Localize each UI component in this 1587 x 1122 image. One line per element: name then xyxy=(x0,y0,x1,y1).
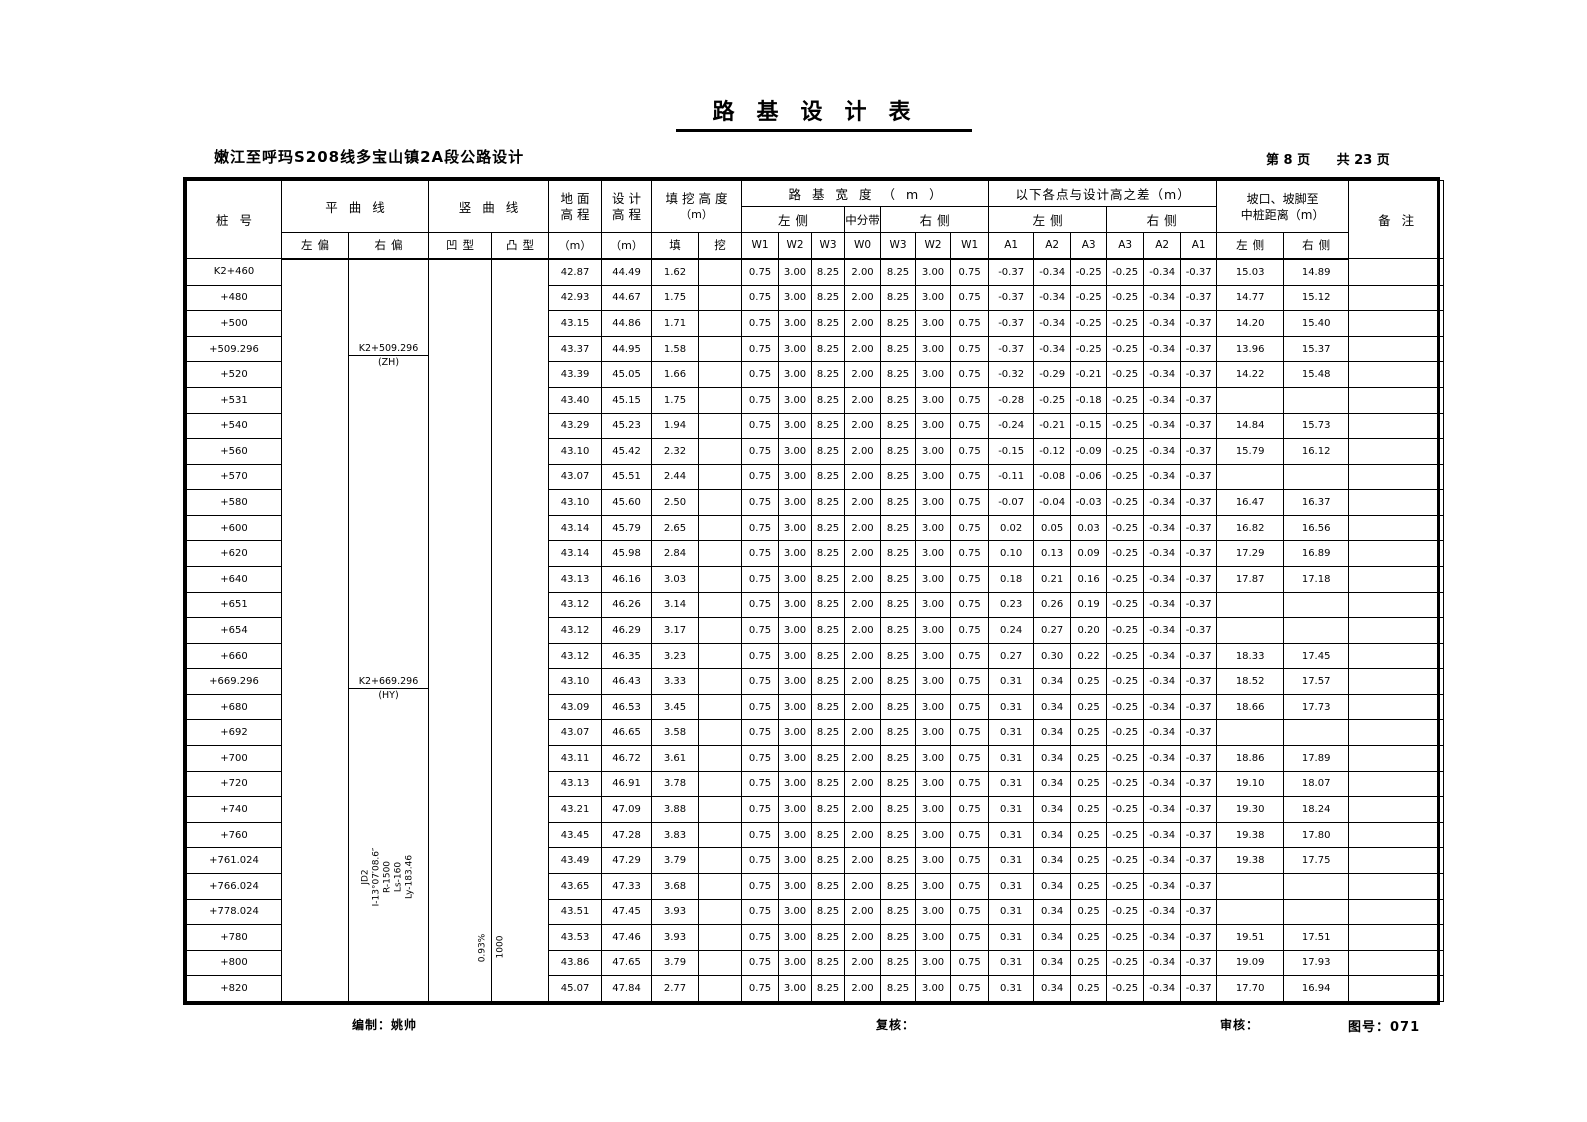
stake-number-cell: +620 xyxy=(187,541,282,567)
height-diff-cell-a2: 0.25 xyxy=(1071,873,1107,899)
height-diff-cell-a5: -0.37 xyxy=(1181,746,1217,772)
page-total: 共 23 页 xyxy=(1337,153,1390,168)
roadbed-width-cell-w1: 3.00 xyxy=(779,541,812,567)
distance-left-cell: 14.77 xyxy=(1217,285,1284,311)
height-diff-cell-a1: -0.34 xyxy=(1034,311,1071,337)
roadbed-width-cell-w0: 0.75 xyxy=(742,515,779,541)
label-line: 设计 xyxy=(602,191,651,207)
roadbed-width-cell-w6: 0.75 xyxy=(951,950,989,976)
roadbed-width-cell-w0: 0.75 xyxy=(742,541,779,567)
distance-right-cell: 16.56 xyxy=(1284,515,1349,541)
height-diff-cell-a5: -0.37 xyxy=(1181,387,1217,413)
col-header-height-diff: 以下各点与设计高之差（m） xyxy=(989,181,1217,207)
height-diff-cell-a0: 0.31 xyxy=(989,771,1034,797)
roadbed-width-cell-w6: 0.75 xyxy=(951,797,989,823)
roadbed-width-cell-w1: 3.00 xyxy=(779,899,812,925)
roadbed-width-cell-w2: 8.25 xyxy=(812,592,845,618)
ground-elevation-cell: 43.13 xyxy=(549,567,602,593)
roadbed-width-cell-w5: 3.00 xyxy=(916,873,951,899)
roadbed-width-cell-w4: 8.25 xyxy=(881,567,916,593)
roadbed-width-cell-w3: 2.00 xyxy=(845,746,881,772)
stake-number-cell: +780 xyxy=(187,925,282,951)
col-header-a1-left: A1 xyxy=(989,233,1034,259)
distance-left-cell xyxy=(1217,592,1284,618)
remark-cell xyxy=(1349,976,1444,1002)
height-diff-cell-a4: -0.34 xyxy=(1144,439,1181,465)
roadbed-width-cell-w4: 8.25 xyxy=(881,439,916,465)
height-diff-cell-a4: -0.34 xyxy=(1144,413,1181,439)
col-header-slope-distance: 坡口、坡脚至 中桩距离（m） xyxy=(1217,181,1349,233)
col-header-roadbed-width: 路基宽度（m） xyxy=(742,181,989,207)
roadbed-width-cell-w4: 8.25 xyxy=(881,746,916,772)
roadbed-width-cell-w2: 8.25 xyxy=(812,976,845,1002)
design-elevation-cell: 47.84 xyxy=(602,976,652,1002)
height-diff-cell-a3: -0.25 xyxy=(1107,618,1144,644)
roadbed-width-cell-w1: 3.00 xyxy=(779,592,812,618)
stake-number-cell: +640 xyxy=(187,567,282,593)
roadbed-width-cell-w0: 0.75 xyxy=(742,413,779,439)
roadbed-width-cell-w0: 0.75 xyxy=(742,873,779,899)
height-diff-cell-a4: -0.34 xyxy=(1144,285,1181,311)
roadbed-width-cell-w3: 2.00 xyxy=(845,336,881,362)
col-header-convex: 凸型 xyxy=(492,233,549,259)
distance-right-cell: 15.40 xyxy=(1284,311,1349,337)
remark-cell xyxy=(1349,311,1444,337)
cut-height-cell xyxy=(699,362,742,388)
col-header-ground-unit: （m） xyxy=(549,233,602,259)
height-diff-cell-a4: -0.34 xyxy=(1144,925,1181,951)
height-diff-cell-a4: -0.34 xyxy=(1144,848,1181,874)
distance-right-cell: 18.24 xyxy=(1284,797,1349,823)
design-elevation-cell: 46.91 xyxy=(602,771,652,797)
height-diff-cell-a0: -0.37 xyxy=(989,311,1034,337)
distance-right-cell xyxy=(1284,387,1349,413)
fill-height-cell: 3.33 xyxy=(652,669,699,695)
roadbed-width-cell-w2: 8.25 xyxy=(812,541,845,567)
roadbed-width-cell-w4: 8.25 xyxy=(881,259,916,286)
height-diff-cell-a1: 0.34 xyxy=(1034,771,1071,797)
cut-height-cell xyxy=(699,515,742,541)
cut-height-cell xyxy=(699,822,742,848)
height-diff-cell-a3: -0.25 xyxy=(1107,720,1144,746)
roadbed-width-cell-w1: 3.00 xyxy=(779,848,812,874)
roadbed-width-cell-w2: 8.25 xyxy=(812,413,845,439)
height-diff-cell-a5: -0.37 xyxy=(1181,950,1217,976)
roadbed-width-cell-w5: 3.00 xyxy=(916,515,951,541)
remark-cell xyxy=(1349,669,1444,695)
height-diff-cell-a3: -0.25 xyxy=(1107,541,1144,567)
design-elevation-cell: 45.98 xyxy=(602,541,652,567)
stake-number-cell: +760 xyxy=(187,822,282,848)
roadbed-width-cell-w0: 0.75 xyxy=(742,899,779,925)
height-diff-cell-a5: -0.37 xyxy=(1181,515,1217,541)
ground-elevation-cell: 43.10 xyxy=(549,490,602,516)
height-diff-cell-a1: 0.34 xyxy=(1034,925,1071,951)
roadbed-width-cell-w1: 3.00 xyxy=(779,336,812,362)
height-diff-cell-a4: -0.34 xyxy=(1144,694,1181,720)
height-diff-cell-a3: -0.25 xyxy=(1107,822,1144,848)
distance-right-cell: 15.37 xyxy=(1284,336,1349,362)
page-current: 第 8 页 xyxy=(1266,153,1310,168)
roadbed-width-cell-w6: 0.75 xyxy=(951,873,989,899)
vertical-curve-note: 1000 xyxy=(496,935,507,958)
height-diff-cell-a1: 0.27 xyxy=(1034,618,1071,644)
height-diff-cell-a5: -0.37 xyxy=(1181,567,1217,593)
col-header-w3-left: W3 xyxy=(812,233,845,259)
col-header-w1-right: W1 xyxy=(951,233,989,259)
cut-height-cell xyxy=(699,413,742,439)
distance-left-cell: 19.10 xyxy=(1217,771,1284,797)
stake-number-cell: +540 xyxy=(187,413,282,439)
design-elevation-cell: 46.72 xyxy=(602,746,652,772)
height-diff-cell-a2: 0.25 xyxy=(1071,976,1107,1002)
height-diff-cell-a4: -0.34 xyxy=(1144,592,1181,618)
cut-height-cell xyxy=(699,976,742,1002)
col-header-dist-right: 右侧 xyxy=(1284,233,1349,259)
height-diff-cell-a0: 0.31 xyxy=(989,950,1034,976)
remark-cell xyxy=(1349,618,1444,644)
height-diff-cell-a4: -0.34 xyxy=(1144,669,1181,695)
height-diff-cell-a4: -0.34 xyxy=(1144,490,1181,516)
label-line: 中桩距离（m） xyxy=(1217,207,1348,223)
height-diff-cell-a4: -0.34 xyxy=(1144,311,1181,337)
ground-elevation-cell: 43.14 xyxy=(549,541,602,567)
col-header-a3-right: A3 xyxy=(1107,233,1144,259)
height-diff-cell-a4: -0.34 xyxy=(1144,899,1181,925)
design-elevation-cell: 47.65 xyxy=(602,950,652,976)
height-diff-cell-a2: 0.16 xyxy=(1071,567,1107,593)
distance-left-cell xyxy=(1217,618,1284,644)
height-diff-cell-a2: 0.25 xyxy=(1071,848,1107,874)
stake-number-cell: +480 xyxy=(187,285,282,311)
height-diff-cell-a0: 0.31 xyxy=(989,848,1034,874)
roadbed-width-cell-w0: 0.75 xyxy=(742,822,779,848)
roadbed-width-cell-w3: 2.00 xyxy=(845,873,881,899)
height-diff-cell-a0: 0.31 xyxy=(989,720,1034,746)
roadbed-width-cell-w1: 3.00 xyxy=(779,285,812,311)
height-diff-cell-a3: -0.25 xyxy=(1107,669,1144,695)
distance-right-cell: 17.89 xyxy=(1284,746,1349,772)
height-diff-cell-a1: 0.34 xyxy=(1034,822,1071,848)
ground-elevation-cell: 43.12 xyxy=(549,643,602,669)
roadbed-width-cell-w5: 3.00 xyxy=(916,797,951,823)
height-diff-cell-a2: -0.25 xyxy=(1071,259,1107,286)
roadbed-width-cell-w1: 3.00 xyxy=(779,413,812,439)
height-diff-cell-a2: -0.21 xyxy=(1071,362,1107,388)
stake-number-cell: +820 xyxy=(187,976,282,1002)
roadbed-width-cell-w4: 8.25 xyxy=(881,873,916,899)
height-diff-cell-a2: 0.25 xyxy=(1071,797,1107,823)
remark-cell xyxy=(1349,694,1444,720)
left-deflection-column xyxy=(282,259,349,1002)
roadbed-width-cell-w3: 2.00 xyxy=(845,413,881,439)
col-header-ground-elevation: 地面 高程 xyxy=(549,181,602,233)
height-diff-cell-a3: -0.25 xyxy=(1107,490,1144,516)
roadbed-width-cell-w2: 8.25 xyxy=(812,899,845,925)
height-diff-cell-a0: 0.31 xyxy=(989,694,1034,720)
roadbed-width-cell-w0: 0.75 xyxy=(742,439,779,465)
height-diff-cell-a0: -0.15 xyxy=(989,439,1034,465)
roadbed-width-cell-w6: 0.75 xyxy=(951,976,989,1002)
roadbed-width-cell-w0: 0.75 xyxy=(742,259,779,286)
roadbed-width-cell-w4: 8.25 xyxy=(881,515,916,541)
remark-cell xyxy=(1349,567,1444,593)
col-header-median: 中分带 xyxy=(845,207,881,233)
fill-height-cell: 1.75 xyxy=(652,387,699,413)
grade-note: 0.93% xyxy=(478,933,489,962)
height-diff-cell-a1: 0.34 xyxy=(1034,669,1071,695)
roadbed-width-cell-w2: 8.25 xyxy=(812,669,845,695)
height-diff-cell-a1: 0.34 xyxy=(1034,746,1071,772)
height-diff-cell-a2: 0.25 xyxy=(1071,822,1107,848)
ground-elevation-cell: 43.09 xyxy=(549,694,602,720)
design-elevation-cell: 45.79 xyxy=(602,515,652,541)
distance-right-cell xyxy=(1284,873,1349,899)
roadbed-width-cell-w4: 8.25 xyxy=(881,285,916,311)
height-diff-cell-a3: -0.25 xyxy=(1107,464,1144,490)
roadbed-width-cell-w4: 8.25 xyxy=(881,592,916,618)
stake-number-cell: +580 xyxy=(187,490,282,516)
height-diff-cell-a5: -0.37 xyxy=(1181,643,1217,669)
height-diff-cell-a5: -0.37 xyxy=(1181,976,1217,1002)
height-diff-cell-a4: -0.34 xyxy=(1144,541,1181,567)
roadbed-width-cell-w3: 2.00 xyxy=(845,285,881,311)
roadbed-width-cell-w0: 0.75 xyxy=(742,950,779,976)
height-diff-cell-a5: -0.37 xyxy=(1181,771,1217,797)
roadbed-width-cell-w2: 8.25 xyxy=(812,387,845,413)
ground-elevation-cell: 43.21 xyxy=(549,797,602,823)
distance-left-cell xyxy=(1217,387,1284,413)
remark-cell xyxy=(1349,873,1444,899)
roadbed-width-cell-w6: 0.75 xyxy=(951,746,989,772)
height-diff-cell-a0: 0.27 xyxy=(989,643,1034,669)
height-diff-cell-a5: -0.37 xyxy=(1181,311,1217,337)
height-diff-cell-a1: 0.26 xyxy=(1034,592,1071,618)
distance-left-cell xyxy=(1217,720,1284,746)
roadbed-width-cell-w2: 8.25 xyxy=(812,567,845,593)
roadbed-width-cell-w4: 8.25 xyxy=(881,336,916,362)
roadbed-width-cell-w4: 8.25 xyxy=(881,618,916,644)
design-elevation-cell: 45.60 xyxy=(602,490,652,516)
distance-left-cell: 17.87 xyxy=(1217,567,1284,593)
roadbed-width-cell-w5: 3.00 xyxy=(916,643,951,669)
roadbed-width-cell-w0: 0.75 xyxy=(742,694,779,720)
roadbed-width-cell-w5: 3.00 xyxy=(916,387,951,413)
ground-elevation-cell: 42.93 xyxy=(549,285,602,311)
roadbed-width-cell-w2: 8.25 xyxy=(812,618,845,644)
col-header-cut: 挖 xyxy=(699,233,742,259)
height-diff-cell-a3: -0.25 xyxy=(1107,387,1144,413)
height-diff-cell-a4: -0.34 xyxy=(1144,822,1181,848)
height-diff-cell-a2: 0.20 xyxy=(1071,618,1107,644)
remark-cell xyxy=(1349,899,1444,925)
footer-prepared-by: 编制：姚帅 xyxy=(352,1016,417,1033)
remark-cell xyxy=(1349,822,1444,848)
roadbed-width-cell-w4: 8.25 xyxy=(881,822,916,848)
distance-left-cell xyxy=(1217,899,1284,925)
height-diff-cell-a3: -0.25 xyxy=(1107,797,1144,823)
height-diff-cell-a3: -0.25 xyxy=(1107,694,1144,720)
roadbed-width-cell-w6: 0.75 xyxy=(951,464,989,490)
roadbed-width-cell-w6: 0.75 xyxy=(951,285,989,311)
col-header-right-deflection: 右偏 xyxy=(349,233,429,259)
design-elevation-cell: 44.49 xyxy=(602,259,652,286)
roadbed-width-cell-w6: 0.75 xyxy=(951,490,989,516)
roadbed-width-cell-w4: 8.25 xyxy=(881,797,916,823)
stake-number-cell: +800 xyxy=(187,950,282,976)
fill-height-cell: 3.83 xyxy=(652,822,699,848)
height-diff-cell-a0: 0.10 xyxy=(989,541,1034,567)
roadbed-width-cell-w2: 8.25 xyxy=(812,694,845,720)
height-diff-cell-a1: -0.04 xyxy=(1034,490,1071,516)
roadbed-width-cell-w1: 3.00 xyxy=(779,925,812,951)
roadbed-width-cell-w2: 8.25 xyxy=(812,643,845,669)
design-elevation-cell: 47.46 xyxy=(602,925,652,951)
stake-number-cell: +720 xyxy=(187,771,282,797)
design-elevation-cell: 47.45 xyxy=(602,899,652,925)
right-deflection-column: K2+509.296(ZH)K2+669.296(HY)JD2I-13°07′0… xyxy=(349,259,429,1002)
remark-cell xyxy=(1349,925,1444,951)
height-diff-cell-a0: 0.24 xyxy=(989,618,1034,644)
roadbed-width-cell-w6: 0.75 xyxy=(951,925,989,951)
roadbed-width-cell-w5: 3.00 xyxy=(916,899,951,925)
roadbed-width-cell-w6: 0.75 xyxy=(951,720,989,746)
title-underline xyxy=(676,129,972,132)
height-diff-cell-a3: -0.25 xyxy=(1107,413,1144,439)
fill-height-cell: 1.62 xyxy=(652,259,699,286)
height-diff-cell-a5: -0.37 xyxy=(1181,669,1217,695)
height-diff-cell-a2: 0.03 xyxy=(1071,515,1107,541)
col-header-left-side: 左侧 xyxy=(742,207,845,233)
ground-elevation-cell: 43.65 xyxy=(549,873,602,899)
remark-cell xyxy=(1349,336,1444,362)
hy-point-marker: K2+669.296(HY) xyxy=(349,675,428,702)
concave-curve-column: 0.93% xyxy=(429,259,492,1002)
height-diff-cell-a5: -0.37 xyxy=(1181,541,1217,567)
design-elevation-cell: 46.16 xyxy=(602,567,652,593)
height-diff-cell-a4: -0.34 xyxy=(1144,464,1181,490)
roadbed-width-cell-w1: 3.00 xyxy=(779,311,812,337)
label-line: 高程 xyxy=(602,207,651,223)
height-diff-cell-a4: -0.34 xyxy=(1144,873,1181,899)
height-diff-cell-a5: -0.37 xyxy=(1181,797,1217,823)
height-diff-cell-a5: -0.37 xyxy=(1181,720,1217,746)
height-diff-cell-a3: -0.25 xyxy=(1107,567,1144,593)
height-diff-cell-a3: -0.25 xyxy=(1107,362,1144,388)
design-elevation-cell: 46.43 xyxy=(602,669,652,695)
distance-left-cell: 14.20 xyxy=(1217,311,1284,337)
stake-number-cell: +740 xyxy=(187,797,282,823)
height-diff-cell-a1: -0.25 xyxy=(1034,387,1071,413)
remark-cell xyxy=(1349,541,1444,567)
height-diff-cell-a5: -0.37 xyxy=(1181,285,1217,311)
cut-height-cell xyxy=(699,771,742,797)
roadbed-width-cell-w1: 3.00 xyxy=(779,950,812,976)
roadbed-width-cell-w2: 8.25 xyxy=(812,822,845,848)
distance-right-cell: 17.18 xyxy=(1284,567,1349,593)
col-header-design-elevation: 设计 高程 xyxy=(602,181,652,233)
distance-right-cell: 16.12 xyxy=(1284,439,1349,465)
height-diff-cell-a5: -0.37 xyxy=(1181,925,1217,951)
roadbed-width-cell-w2: 8.25 xyxy=(812,490,845,516)
ground-elevation-cell: 43.12 xyxy=(549,592,602,618)
distance-right-cell xyxy=(1284,899,1349,925)
roadbed-width-cell-w0: 0.75 xyxy=(742,285,779,311)
roadbed-width-cell-w4: 8.25 xyxy=(881,413,916,439)
height-diff-cell-a5: -0.37 xyxy=(1181,592,1217,618)
height-diff-cell-a1: 0.13 xyxy=(1034,541,1071,567)
ground-elevation-cell: 43.10 xyxy=(549,669,602,695)
design-elevation-cell: 44.86 xyxy=(602,311,652,337)
height-diff-cell-a2: 0.22 xyxy=(1071,643,1107,669)
height-diff-cell-a3: -0.25 xyxy=(1107,311,1144,337)
design-elevation-cell: 46.35 xyxy=(602,643,652,669)
height-diff-cell-a2: -0.25 xyxy=(1071,285,1107,311)
project-subtitle: 嫩江至呼玛S208线多宝山镇2A段公路设计 xyxy=(214,146,524,167)
roadbed-width-cell-w2: 8.25 xyxy=(812,464,845,490)
roadbed-width-cell-w4: 8.25 xyxy=(881,899,916,925)
roadbed-width-cell-w5: 3.00 xyxy=(916,285,951,311)
roadbed-width-cell-w2: 8.25 xyxy=(812,311,845,337)
roadbed-width-cell-w1: 3.00 xyxy=(779,515,812,541)
ground-elevation-cell: 43.14 xyxy=(549,515,602,541)
height-diff-cell-a5: -0.37 xyxy=(1181,899,1217,925)
fill-height-cell: 3.61 xyxy=(652,746,699,772)
height-diff-cell-a4: -0.34 xyxy=(1144,797,1181,823)
roadbed-width-cell-w0: 0.75 xyxy=(742,771,779,797)
height-diff-cell-a0: -0.37 xyxy=(989,336,1034,362)
roadbed-width-cell-w5: 3.00 xyxy=(916,541,951,567)
roadbed-width-cell-w5: 3.00 xyxy=(916,822,951,848)
roadbed-width-cell-w5: 3.00 xyxy=(916,439,951,465)
roadbed-width-cell-w6: 0.75 xyxy=(951,618,989,644)
design-elevation-cell: 46.53 xyxy=(602,694,652,720)
roadbed-width-cell-w2: 8.25 xyxy=(812,797,845,823)
roadbed-width-cell-w2: 8.25 xyxy=(812,259,845,286)
height-diff-cell-a0: 0.02 xyxy=(989,515,1034,541)
height-diff-cell-a3: -0.25 xyxy=(1107,976,1144,1002)
fill-height-cell: 3.93 xyxy=(652,899,699,925)
height-diff-cell-a0: 0.31 xyxy=(989,899,1034,925)
ground-elevation-cell: 43.11 xyxy=(549,746,602,772)
fill-height-cell: 3.79 xyxy=(652,950,699,976)
distance-right-cell: 15.48 xyxy=(1284,362,1349,388)
roadbed-width-cell-w6: 0.75 xyxy=(951,311,989,337)
distance-left-cell: 15.79 xyxy=(1217,439,1284,465)
roadbed-width-cell-w3: 2.00 xyxy=(845,976,881,1002)
height-diff-cell-a4: -0.34 xyxy=(1144,771,1181,797)
roadbed-design-table: 桩号 平曲线 竖曲线 地面 高程 设计 高程 填挖高度 （m） xyxy=(183,177,1440,1005)
ground-elevation-cell: 43.51 xyxy=(549,899,602,925)
roadbed-width-cell-w4: 8.25 xyxy=(881,541,916,567)
height-diff-cell-a3: -0.25 xyxy=(1107,771,1144,797)
col-header-left-deflection: 左偏 xyxy=(282,233,349,259)
cut-height-cell xyxy=(699,694,742,720)
stake-number-cell: +531 xyxy=(187,387,282,413)
roadbed-width-cell-w5: 3.00 xyxy=(916,464,951,490)
design-elevation-cell: 46.26 xyxy=(602,592,652,618)
height-diff-cell-a3: -0.25 xyxy=(1107,925,1144,951)
height-diff-cell-a2: 0.25 xyxy=(1071,746,1107,772)
height-diff-cell-a1: 0.05 xyxy=(1034,515,1071,541)
height-diff-cell-a2: -0.03 xyxy=(1071,490,1107,516)
stake-number-cell: +570 xyxy=(187,464,282,490)
remark-cell xyxy=(1349,413,1444,439)
roadbed-width-cell-w1: 3.00 xyxy=(779,618,812,644)
stake-number-cell: +520 xyxy=(187,362,282,388)
table-header: 桩号 平曲线 竖曲线 地面 高程 设计 高程 填挖高度 （m） xyxy=(187,181,1444,259)
stake-number-cell: +761.024 xyxy=(187,848,282,874)
